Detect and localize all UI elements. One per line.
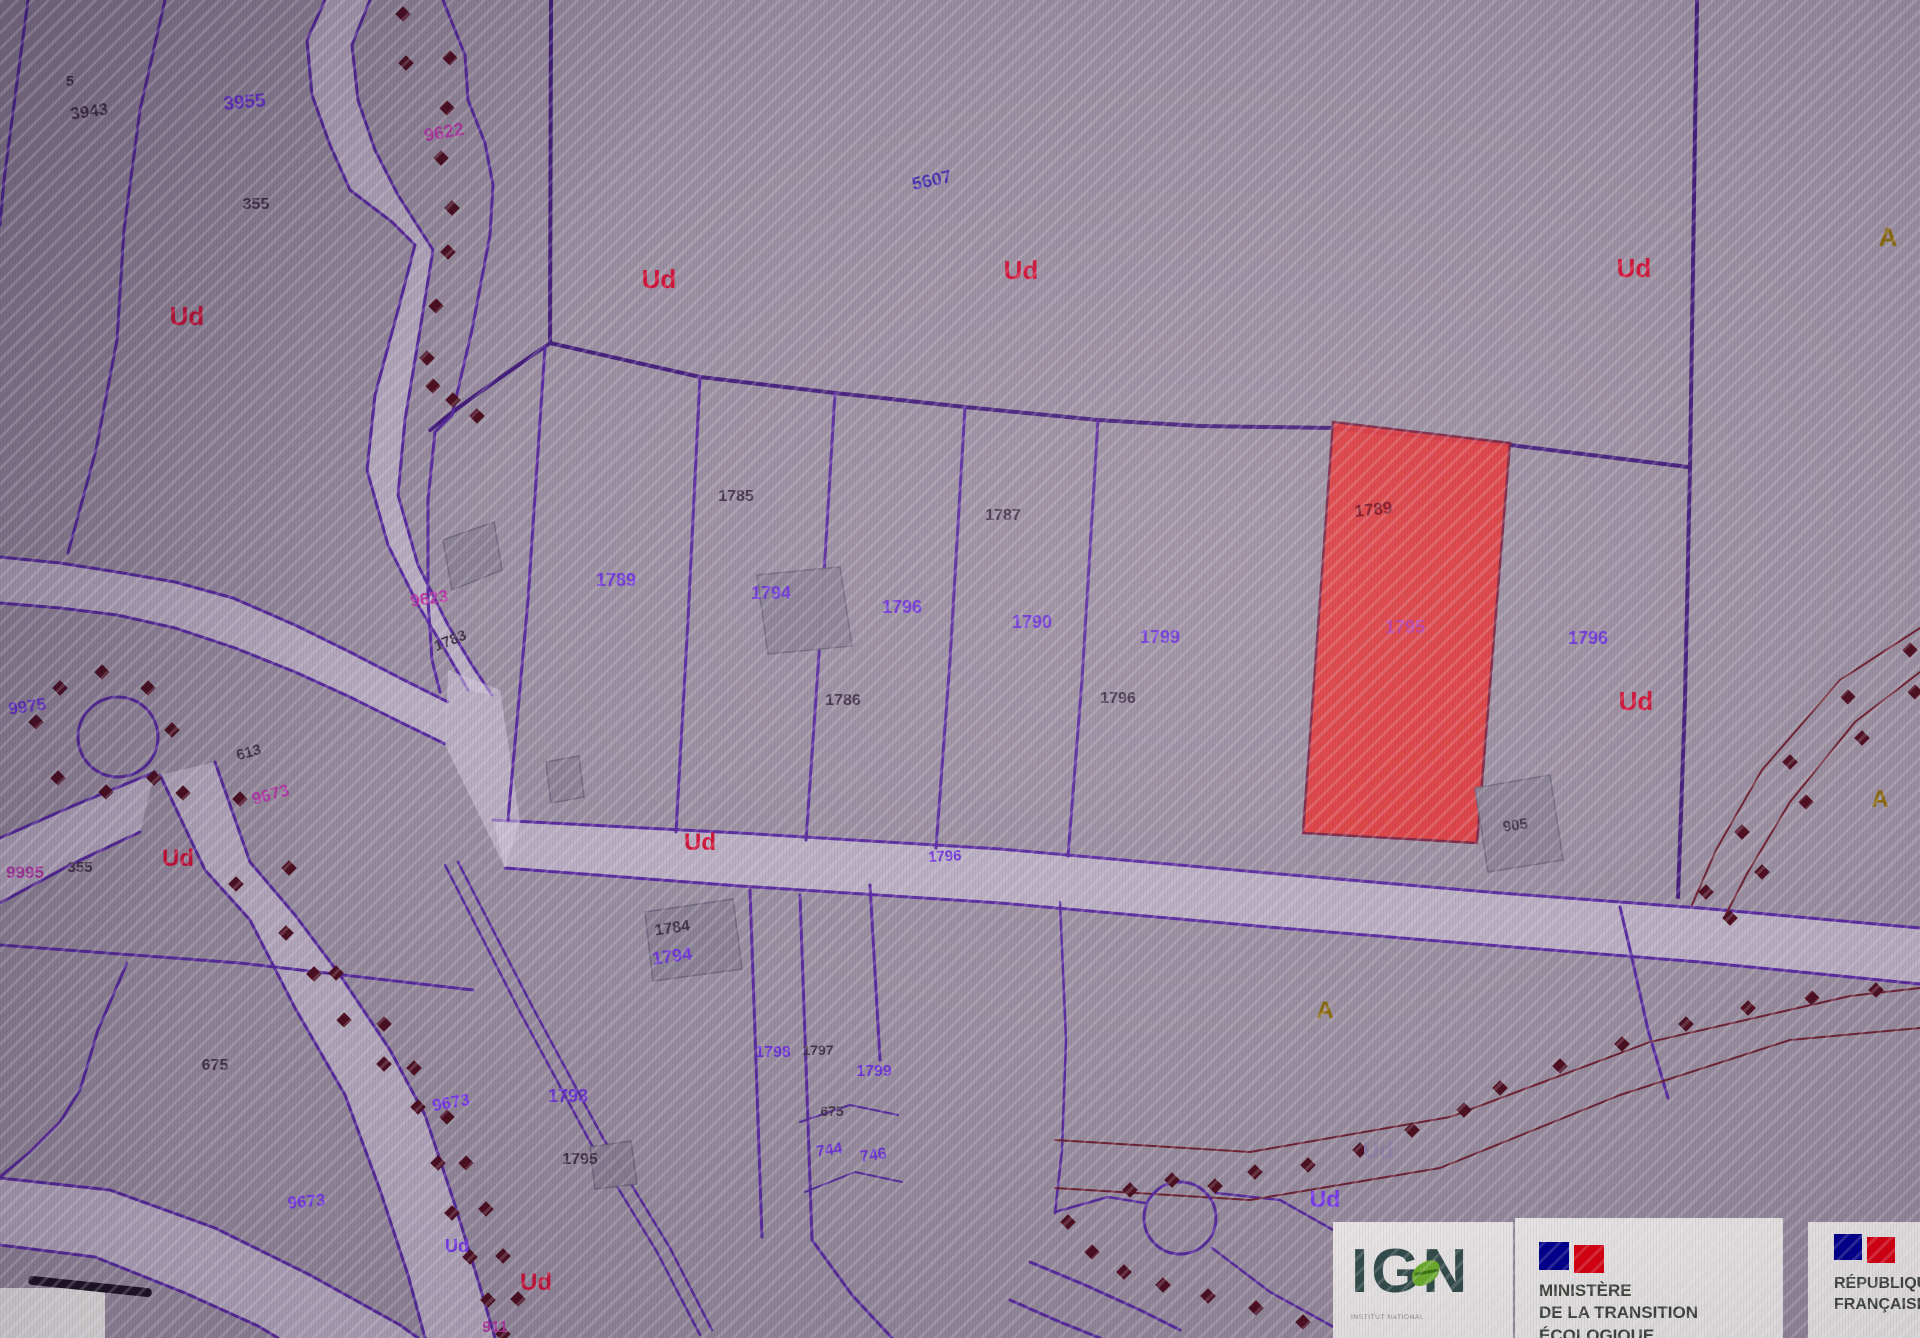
parcel-label: 9673 bbox=[250, 781, 291, 809]
hedge-dot bbox=[428, 298, 444, 314]
parcel-label: 1796 bbox=[928, 847, 962, 866]
hedge-dot bbox=[52, 680, 68, 696]
hedge-dot bbox=[164, 722, 180, 738]
parcel-boundary bbox=[805, 1172, 902, 1192]
hedge-line bbox=[1692, 628, 1920, 905]
parcel-label: 911 bbox=[482, 1319, 508, 1336]
parcel-boundary bbox=[812, 1240, 892, 1338]
roundabout bbox=[1144, 1182, 1216, 1254]
parcel-label: 1796 bbox=[1100, 690, 1136, 707]
parcel-boundary bbox=[936, 407, 965, 848]
parcel-boundary bbox=[0, 0, 28, 225]
roundabout bbox=[78, 697, 158, 777]
hedge-dot bbox=[1854, 730, 1870, 746]
hedge-dot bbox=[1492, 1080, 1508, 1096]
zone-label: Ud bbox=[684, 829, 716, 856]
hedge-dot bbox=[444, 200, 460, 216]
parcel-label: 675 bbox=[202, 1057, 229, 1074]
parcel-label: 1799 bbox=[1140, 627, 1180, 647]
parcel-label: 9622 bbox=[423, 119, 466, 146]
hedge-dot bbox=[140, 680, 156, 696]
ign-tagline: INSTITUT NATIONAL bbox=[1351, 1314, 1424, 1321]
zone-label: Ud bbox=[520, 1269, 552, 1296]
parcel-boundary bbox=[1010, 1300, 1100, 1338]
hedge-dot bbox=[1456, 1102, 1472, 1118]
parcel-label: 744 bbox=[815, 1140, 844, 1161]
parcel-boundary bbox=[1055, 1197, 1145, 1212]
zone-label: Ud bbox=[170, 301, 205, 331]
parcel-boundary bbox=[0, 945, 473, 990]
building-footprint bbox=[546, 756, 584, 803]
parcel-label: 1795 bbox=[1385, 617, 1425, 637]
parcel-label: 1798 bbox=[755, 1044, 791, 1061]
hedge-dot bbox=[1782, 754, 1798, 770]
hedge-dot bbox=[458, 1155, 474, 1171]
hedge-dot bbox=[1248, 1300, 1264, 1316]
parcel-label: 355 bbox=[67, 859, 92, 876]
zone-label: Ud bbox=[1363, 1137, 1394, 1163]
hedge-dot bbox=[1798, 794, 1814, 810]
building-footprint bbox=[757, 567, 852, 654]
parcel-label: 1799 bbox=[856, 1063, 892, 1080]
zone-label: Ud bbox=[162, 845, 194, 872]
parcel-label: 746 bbox=[859, 1145, 888, 1166]
parcel-boundary bbox=[1212, 1248, 1352, 1338]
parcel-boundary bbox=[1055, 902, 1066, 1213]
zone-label: A bbox=[1879, 222, 1898, 252]
parcel-label: 9623 bbox=[409, 587, 449, 611]
hedge-dot bbox=[395, 6, 411, 22]
hedge-dot bbox=[50, 770, 66, 786]
hedge-dot bbox=[376, 1016, 392, 1032]
parcel-label: 9673 bbox=[431, 1090, 472, 1115]
parcel-boundary bbox=[800, 1105, 898, 1122]
parcel-boundary bbox=[1068, 420, 1098, 856]
hedge-dot bbox=[1122, 1182, 1138, 1198]
hedge-dot bbox=[469, 408, 485, 424]
hedge-dot bbox=[1740, 1000, 1756, 1016]
hedge-dot bbox=[1907, 684, 1920, 700]
parcel-boundary bbox=[800, 895, 812, 1240]
hedge-line bbox=[1055, 988, 1920, 1152]
parcel-label: 1785 bbox=[718, 488, 754, 505]
corner-panel bbox=[0, 1288, 105, 1338]
zone-label: A bbox=[1316, 997, 1333, 1024]
parcel-label: 1795 bbox=[562, 1151, 598, 1168]
hedge-dot bbox=[94, 664, 110, 680]
hedge-dot bbox=[1552, 1058, 1568, 1074]
hedge-dot bbox=[478, 1201, 494, 1217]
cadastral-map-viewer[interactable]: 539433955355Ud96225607UdUdUdA17831789179… bbox=[0, 0, 1920, 1338]
hedge-line bbox=[1055, 1028, 1920, 1200]
parcel-label: 1796 bbox=[882, 597, 922, 617]
hedge-dot bbox=[1678, 1016, 1694, 1032]
parcel-label: 9975 bbox=[7, 695, 47, 719]
parcel-label: 1789 bbox=[596, 570, 636, 590]
parcel-label: 1787 bbox=[985, 507, 1021, 524]
road bbox=[307, 0, 492, 695]
ministry-logo-text: MINISTÈRE DE LA TRANSITION ÉCOLOGIQUE bbox=[1539, 1280, 1698, 1338]
parcel-label: 5 bbox=[66, 73, 74, 90]
hedge-dot bbox=[433, 150, 449, 166]
ign-logo: IGN INSTITUT NATIONAL bbox=[1333, 1222, 1513, 1338]
parcel-label: 1797 bbox=[802, 1042, 833, 1058]
hedge-dot bbox=[1868, 982, 1884, 998]
zone-label: Ud bbox=[1004, 255, 1039, 285]
hedge-dot bbox=[1902, 642, 1918, 658]
hedge-dot bbox=[28, 714, 44, 730]
parcel-label: 1794 bbox=[751, 583, 791, 603]
zone-label: Ud bbox=[1617, 253, 1652, 283]
hedge-dot bbox=[1754, 864, 1770, 880]
parcel-boundary bbox=[676, 377, 700, 832]
hedge-dot bbox=[439, 100, 455, 116]
hedge-dot bbox=[281, 860, 297, 876]
parcel-boundary bbox=[550, 0, 551, 343]
zone-label: Ud bbox=[642, 264, 677, 294]
hedge-dot bbox=[1295, 1314, 1311, 1330]
hedge-dot bbox=[1734, 824, 1750, 840]
hedge-dot bbox=[1060, 1214, 1076, 1230]
hedge-dot bbox=[1207, 1178, 1223, 1194]
parcel-label: 613 bbox=[235, 741, 264, 764]
parcel-label: 1796 bbox=[1568, 628, 1608, 648]
zone-label: A bbox=[1871, 786, 1888, 813]
parcel-boundary bbox=[508, 347, 545, 820]
zone-label: Ud bbox=[445, 1236, 469, 1256]
parcel-boundary bbox=[68, 0, 165, 553]
republique-logo-text: RÉPUBLIQUE FRANÇAISE bbox=[1834, 1274, 1920, 1316]
parcel-label: 9673 bbox=[287, 1190, 326, 1212]
parcel-label: 3943 bbox=[69, 100, 109, 124]
ign-logo-text: IGN bbox=[1351, 1236, 1470, 1307]
hedge-dot bbox=[1116, 1264, 1132, 1280]
parcel-label: 1789 bbox=[1354, 498, 1394, 521]
parcel-label: 3955 bbox=[223, 90, 267, 115]
parcel-label: 1790 bbox=[1012, 612, 1052, 632]
french-flag-icon bbox=[1834, 1234, 1895, 1260]
parcel-boundary bbox=[0, 963, 127, 1177]
hedge-dot bbox=[406, 1060, 422, 1076]
parcel-boundary bbox=[870, 885, 880, 1060]
ministry-logo: MINISTÈRE DE LA TRANSITION ÉCOLOGIQUE bbox=[1515, 1218, 1783, 1338]
hedge-dot bbox=[440, 244, 456, 260]
parcel-boundary bbox=[750, 890, 762, 1237]
parcel-label: 9995 bbox=[6, 863, 44, 882]
french-flag-icon bbox=[1539, 1242, 1604, 1270]
building-footprint bbox=[443, 522, 502, 590]
building-footprint bbox=[645, 899, 742, 981]
hedge-dot bbox=[425, 378, 441, 394]
parcel-label: 1786 bbox=[825, 692, 861, 709]
parcel-boundary bbox=[1678, 0, 1697, 897]
hedge-dot bbox=[1200, 1288, 1216, 1304]
hedge-line bbox=[1724, 672, 1920, 918]
parcel-label: 355 bbox=[243, 196, 270, 213]
parcel-label: 5607 bbox=[910, 166, 953, 194]
hedge-dot bbox=[1300, 1157, 1316, 1173]
parcel-label: 675 bbox=[820, 1103, 844, 1119]
zone-label: Ud bbox=[1619, 686, 1654, 716]
cadastral-map[interactable]: 539433955355Ud96225607UdUdUdA17831789179… bbox=[0, 0, 1920, 1338]
hedge-dot bbox=[1155, 1277, 1171, 1293]
parcel-label: 1793 bbox=[548, 1086, 588, 1106]
road bbox=[0, 557, 448, 744]
hedge-dot bbox=[398, 55, 414, 71]
hedge-dot bbox=[442, 50, 458, 66]
hedge-dot bbox=[1840, 689, 1856, 705]
hedge-dot bbox=[495, 1248, 511, 1264]
hedge-dot bbox=[232, 791, 248, 807]
road bbox=[445, 670, 520, 868]
republique-francaise-logo: RÉPUBLIQUE FRANÇAISE bbox=[1808, 1222, 1920, 1338]
hedge-dot bbox=[1247, 1164, 1263, 1180]
zone-label: Ud bbox=[1310, 1186, 1341, 1212]
hedge-dot bbox=[419, 350, 435, 366]
parcel-label: 905 bbox=[1502, 815, 1529, 835]
hedge-dot bbox=[1084, 1244, 1100, 1260]
